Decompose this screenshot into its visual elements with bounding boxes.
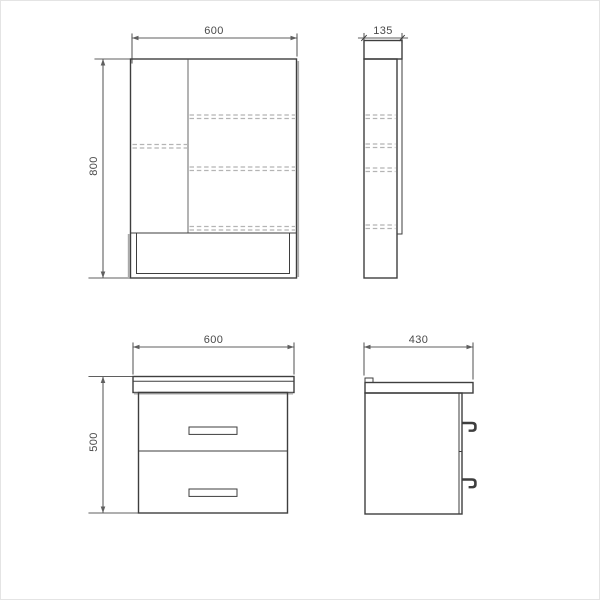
depth-dimension-label: 135 xyxy=(373,25,393,37)
cabinet-body xyxy=(131,59,297,278)
cabinet-body-side xyxy=(365,393,462,514)
dimension-arrow xyxy=(288,345,295,350)
dimension-arrow xyxy=(133,345,140,350)
washbasin-top-side xyxy=(365,383,473,394)
drawer-handle xyxy=(189,427,237,434)
dimension-arrow xyxy=(291,36,298,41)
cabinet-outline xyxy=(129,59,299,278)
vanity-front-view: 600 500 xyxy=(88,334,294,513)
height-dimension-label: 500 xyxy=(88,432,100,452)
shelf-dashed-lines xyxy=(133,115,296,230)
height-dimension-label: 800 xyxy=(88,156,100,176)
width-dimension-label: 600 xyxy=(204,25,224,37)
mirror-cabinet-front-view: 600 800 xyxy=(88,25,298,278)
dimension-arrow xyxy=(467,345,474,350)
technical-drawing-canvas: 600 800 xyxy=(1,1,600,601)
mirror-cabinet-side-view: 135 xyxy=(359,25,408,278)
vanity-outline xyxy=(133,377,294,514)
dimension-arrow xyxy=(132,36,139,41)
width-dimension: 600 xyxy=(133,334,294,374)
dimension-arrow xyxy=(101,377,106,384)
width-dimension-label: 600 xyxy=(204,334,224,346)
cabinet-side-outline xyxy=(364,41,402,279)
drawer-handle-side xyxy=(462,422,477,432)
height-dimension: 500 xyxy=(88,377,138,514)
dimension-arrow xyxy=(101,272,106,279)
washbasin-top xyxy=(133,377,294,393)
shelf-dashed-lines xyxy=(366,115,396,229)
drawer-handle xyxy=(189,489,237,496)
depth-dimension: 430 xyxy=(364,334,473,379)
depth-dimension-label: 430 xyxy=(409,334,429,346)
dimension-arrow xyxy=(364,345,371,350)
drawer-handle-side xyxy=(462,478,477,488)
vanity-side-view: 430 xyxy=(364,334,477,514)
top-cap xyxy=(364,41,402,60)
dimension-arrow xyxy=(101,59,106,66)
dimension-arrow xyxy=(101,507,106,514)
vanity-side-outline xyxy=(365,378,477,514)
cabinet-body xyxy=(139,393,288,514)
height-dimension: 800 xyxy=(88,59,130,278)
width-dimension: 600 xyxy=(132,25,297,63)
technical-drawing-page: 600 800 xyxy=(0,0,600,600)
